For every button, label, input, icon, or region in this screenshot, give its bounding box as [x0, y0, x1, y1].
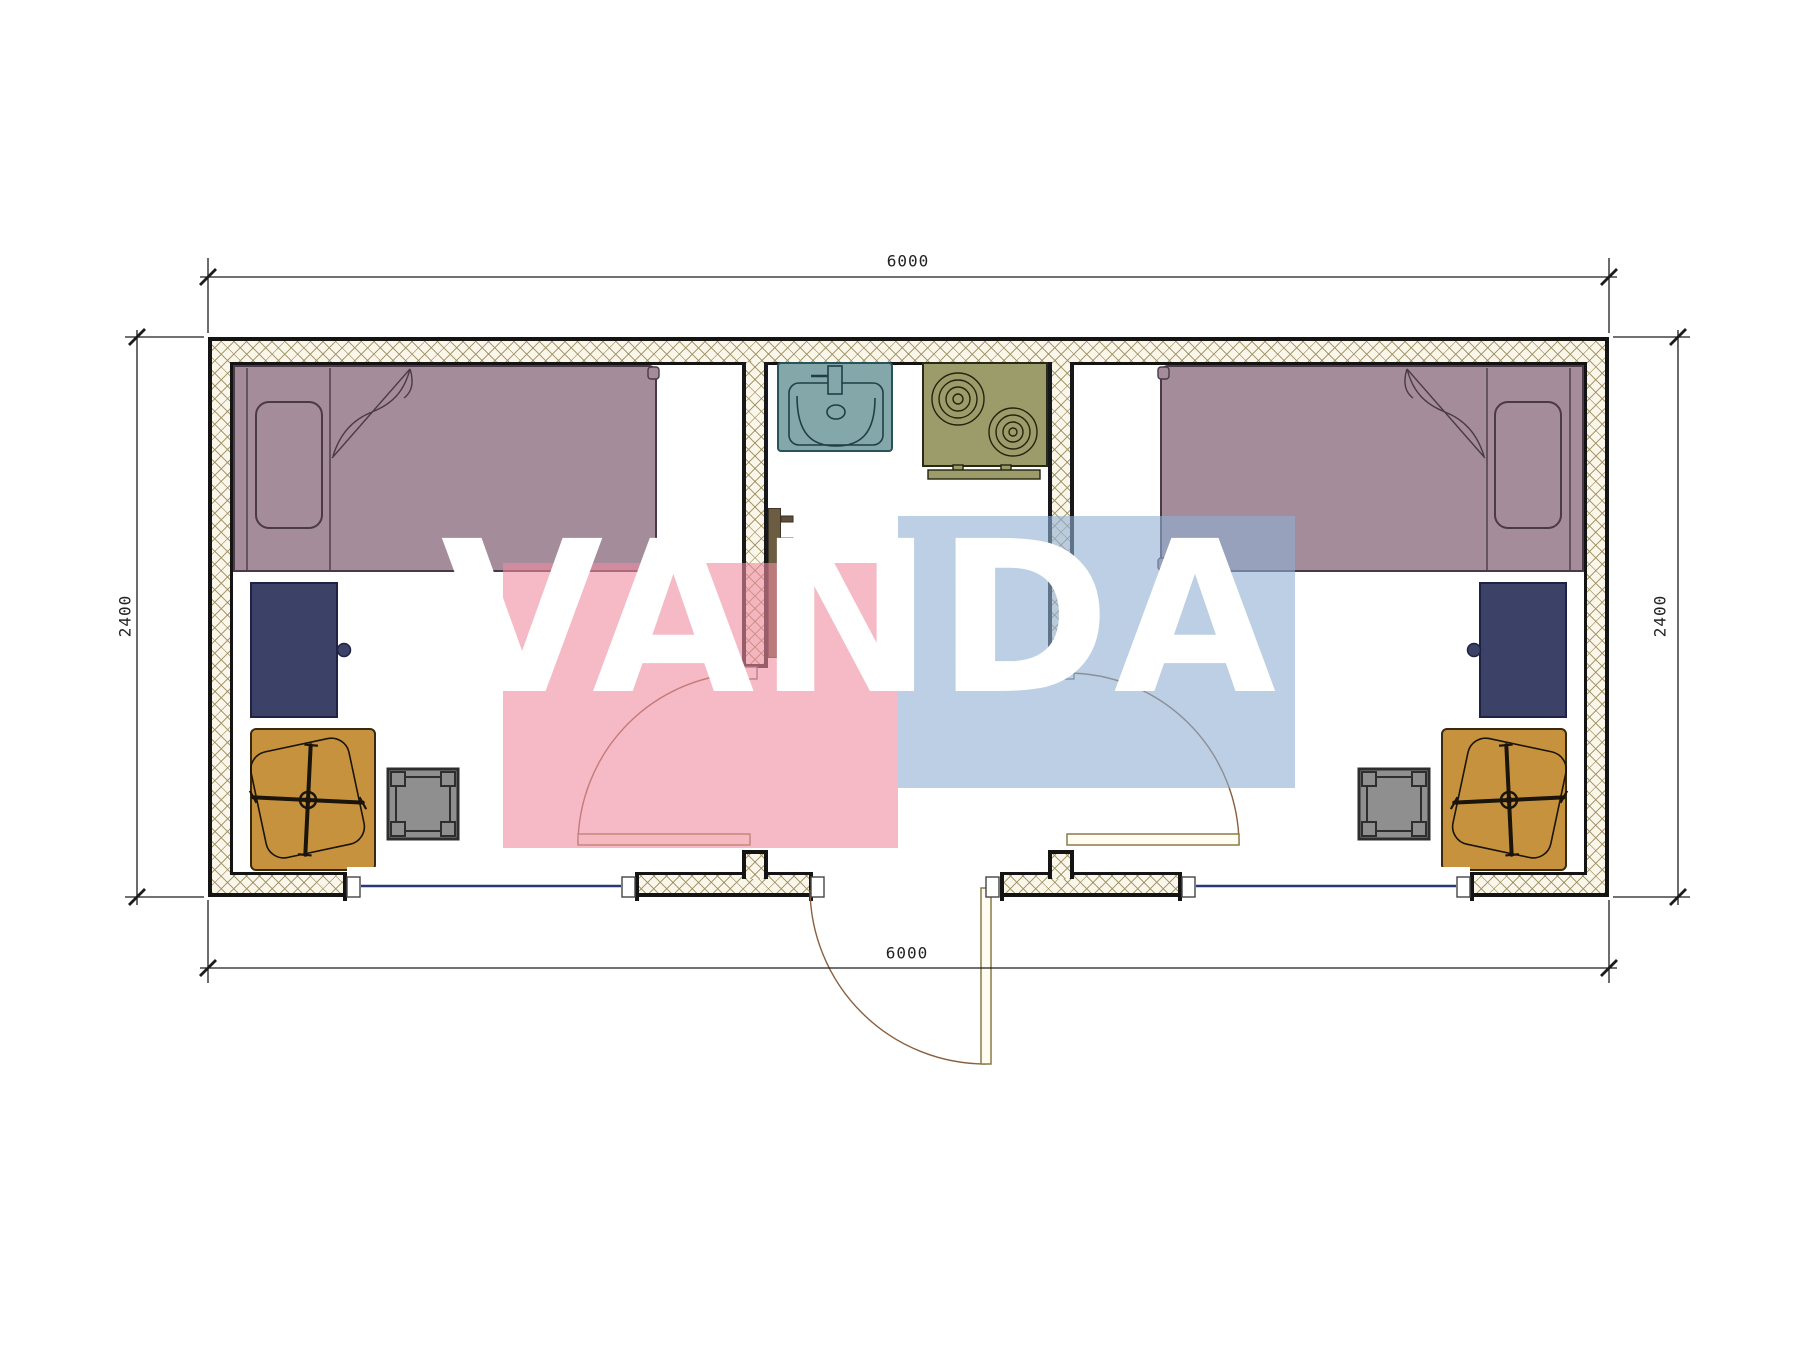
watermark-text: VANDA	[440, 514, 1280, 724]
wall-cap	[343, 875, 347, 901]
dim-bottom: 6000	[886, 944, 929, 963]
wall-stub-left	[742, 850, 768, 879]
dim-right: 2400	[1651, 595, 1670, 638]
desk-left	[250, 728, 376, 871]
floor-plan-canvas: 6000 6000 2400 2400 VANDA	[0, 0, 1800, 1350]
wall-cap	[635, 875, 639, 901]
wall-cap	[1178, 875, 1182, 901]
window-opening-right	[1182, 867, 1470, 905]
pillow-left	[255, 401, 323, 529]
door-entry	[810, 877, 999, 1064]
wall-cap	[1000, 875, 1004, 901]
window-opening-left	[347, 867, 635, 905]
entry-opening	[813, 867, 1000, 905]
wall-stub-right	[1048, 850, 1074, 879]
pillow-right	[1494, 401, 1562, 529]
dim-left: 2400	[116, 595, 135, 638]
stove	[922, 362, 1048, 467]
sink	[777, 362, 893, 452]
wall-cap	[1470, 875, 1474, 901]
desk-right	[1441, 728, 1567, 871]
cabinet-left	[250, 582, 338, 718]
wall-cap	[809, 875, 813, 901]
cabinet-right	[1479, 582, 1567, 718]
dim-top: 6000	[887, 252, 930, 271]
